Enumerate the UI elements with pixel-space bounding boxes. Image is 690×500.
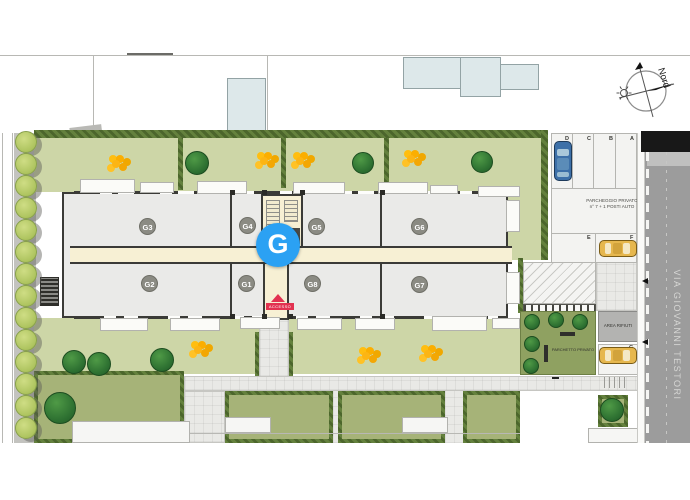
flower-cluster <box>194 346 202 354</box>
footpath <box>184 376 640 391</box>
neighbor-building <box>403 57 461 89</box>
hedge <box>281 138 286 188</box>
wall-pillar <box>262 190 267 195</box>
plot-boundary <box>2 133 3 443</box>
park-tree <box>524 314 540 330</box>
bush <box>15 417 37 439</box>
park-tree <box>572 314 588 330</box>
road-arrow-icon <box>642 339 648 345</box>
wall-pillar <box>288 314 293 319</box>
grate <box>40 277 59 306</box>
gate-mark <box>552 377 559 379</box>
bush <box>15 219 37 241</box>
road-dark-band <box>641 131 690 152</box>
footpath <box>184 391 225 443</box>
unit-badge: G2 <box>141 275 158 292</box>
park-label: PARCHETTO PRIVATO <box>550 347 596 352</box>
terrace <box>100 318 148 331</box>
parking-spot-label-e: E <box>587 235 591 241</box>
tree <box>62 350 86 374</box>
wall-pillar <box>230 314 235 319</box>
bush <box>15 351 37 373</box>
tree <box>44 392 76 424</box>
tree <box>185 151 209 175</box>
park-tree <box>548 312 564 328</box>
terrace <box>430 185 458 194</box>
car-rear-window <box>605 350 611 361</box>
steps-mark <box>604 377 626 388</box>
parking-line <box>595 233 596 263</box>
hedge <box>178 138 183 190</box>
boundary-line <box>0 55 690 56</box>
parking-caption-line2: n° 7 + 1 POSTI AUTO <box>580 204 644 210</box>
lower-building-outline <box>72 421 190 443</box>
tree <box>87 352 111 376</box>
car-windshield <box>557 149 569 156</box>
road-center-dots <box>666 152 667 443</box>
parking-line <box>551 188 637 189</box>
car-windshield <box>623 350 630 361</box>
unit-badge: G7 <box>411 276 428 293</box>
bush <box>15 329 37 351</box>
entrance-arrow-icon <box>271 294 285 302</box>
neighbor-building <box>227 78 266 134</box>
park-bench <box>544 345 548 362</box>
boundary-line <box>267 56 268 133</box>
unit-badge: G5 <box>308 218 325 235</box>
stairs <box>284 200 298 222</box>
terrace <box>170 318 220 331</box>
boundary-line <box>93 56 94 133</box>
unit-badge: G6 <box>411 218 428 235</box>
terrace <box>140 182 174 193</box>
bush <box>15 175 37 197</box>
park-tree <box>523 358 539 374</box>
terrace <box>432 316 487 331</box>
unit-badge: G3 <box>139 218 156 235</box>
north-compass-icon: Nord <box>612 57 684 125</box>
car-yellow <box>599 240 637 257</box>
terrace <box>506 272 520 304</box>
road-dashed-line <box>646 152 649 443</box>
terrace <box>297 318 342 330</box>
waste-area-label: AREA RIFIUTI <box>599 323 637 329</box>
parking-spot-label-a: A <box>630 136 634 142</box>
tree <box>352 152 374 174</box>
bush <box>15 285 37 307</box>
sidewalk <box>637 133 645 443</box>
parking-line <box>551 233 637 234</box>
car-blue <box>554 141 572 181</box>
bush <box>15 373 37 395</box>
parking-spot-label-c: C <box>587 136 591 142</box>
unit-badge: G8 <box>304 275 321 292</box>
parking-spot-label-b: B <box>609 136 613 142</box>
bush <box>15 241 37 263</box>
bush <box>15 263 37 285</box>
flower-cluster <box>407 155 415 163</box>
plot-boundary <box>12 133 13 443</box>
car-roof <box>613 350 622 361</box>
hedge <box>255 332 259 376</box>
lower-building-line <box>190 433 520 434</box>
hedge <box>289 332 293 376</box>
terrace <box>240 317 280 329</box>
lower-building-outline <box>402 417 448 433</box>
car-roof <box>613 243 622 254</box>
terrace <box>197 181 247 194</box>
building-map-marker[interactable]: G <box>256 223 300 267</box>
tree <box>600 398 624 422</box>
wall-pillar <box>300 190 305 195</box>
wall-pillar <box>380 314 385 319</box>
flower-cluster <box>296 157 304 165</box>
terrace <box>355 318 395 330</box>
garage-ramp <box>523 262 596 304</box>
wall-pillar <box>230 190 235 195</box>
car-yellow <box>599 347 637 364</box>
boundary-line <box>127 53 173 55</box>
car-roof <box>557 158 569 170</box>
car-rear-window <box>557 172 569 177</box>
flower-cluster <box>424 350 432 358</box>
car-windshield <box>623 243 630 254</box>
wall-pillar <box>262 314 267 319</box>
compass-north-label: Nord <box>655 67 672 90</box>
hedge <box>34 130 545 138</box>
tree <box>471 151 493 173</box>
tree <box>150 348 174 372</box>
flower-cluster <box>260 157 268 165</box>
site-plan: Nord D C B A E F PARCHEGGIO PRIVAT <box>0 0 690 500</box>
park-bench <box>560 332 575 336</box>
flower-cluster <box>112 160 120 168</box>
hedge <box>384 138 389 186</box>
bush <box>15 131 37 153</box>
terrace <box>80 179 135 193</box>
bush <box>15 153 37 175</box>
parking-caption-line1: PARCHEGGIO PRIVATO <box>580 198 644 204</box>
road <box>645 133 690 443</box>
hedge <box>541 130 548 260</box>
entrance-label: ACCESSO <box>266 303 294 310</box>
park-tree <box>524 336 540 352</box>
parking-line <box>593 133 594 188</box>
lower-building-outline <box>588 428 640 443</box>
terrace <box>506 200 520 232</box>
bush <box>15 197 37 219</box>
garden-plot <box>463 391 520 443</box>
terrace <box>478 186 520 197</box>
parking-line <box>572 133 573 188</box>
terrace <box>492 318 520 329</box>
road-arrow-icon <box>642 278 648 284</box>
street-name: VIA GIOVANNI TESTORI <box>670 205 682 465</box>
car-rear-window <box>605 243 611 254</box>
parking-caption: PARCHEGGIO PRIVATO n° 7 + 1 POSTI AUTO <box>580 198 644 209</box>
unit-badge: G1 <box>238 275 255 292</box>
bush <box>15 307 37 329</box>
unit-badge: G4 <box>239 217 256 234</box>
neighbor-building <box>460 57 501 97</box>
wall-pillar <box>380 190 385 195</box>
entrance-hall <box>263 262 289 320</box>
lower-building-outline <box>225 417 271 433</box>
bush <box>15 395 37 417</box>
terrace <box>378 182 428 194</box>
flower-cluster <box>362 352 370 360</box>
parking-line <box>615 133 616 188</box>
neighbor-building <box>500 64 539 90</box>
road-light-wedge <box>647 152 690 166</box>
driveway <box>596 262 637 311</box>
